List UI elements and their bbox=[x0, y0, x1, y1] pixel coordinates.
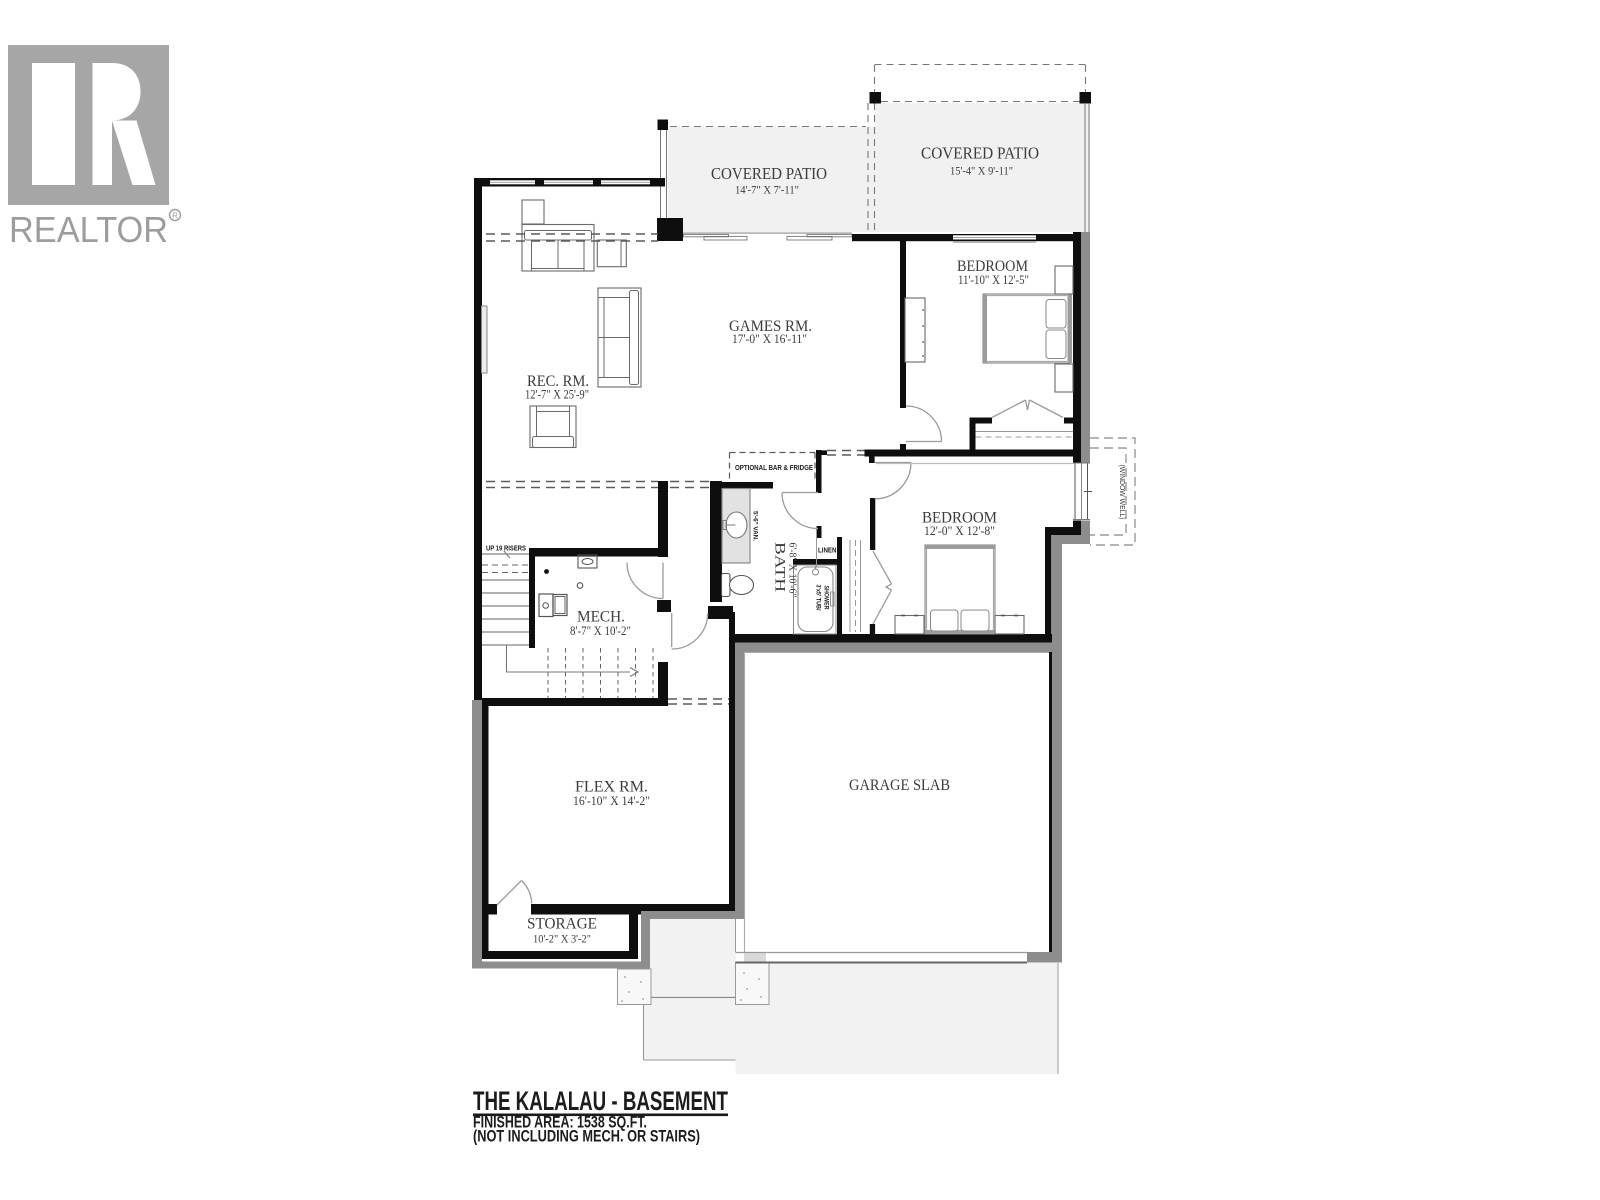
svg-text:(WINDOW WELL): (WINDOW WELL) bbox=[1118, 465, 1125, 520]
svg-text:R: R bbox=[172, 212, 178, 221]
svg-text:16'-10" X 14'-2": 16'-10" X 14'-2" bbox=[573, 794, 650, 808]
svg-text:14'-7" X 7'-11": 14'-7" X 7'-11" bbox=[735, 183, 799, 197]
svg-text:GARAGE SLAB: GARAGE SLAB bbox=[849, 777, 950, 794]
svg-text:MECH.: MECH. bbox=[577, 609, 625, 626]
svg-text:3'x5' TUB/: 3'x5' TUB/ bbox=[815, 585, 822, 611]
svg-text:(NOT INCLUDING MECH. OR STAIRS: (NOT INCLUDING MECH. OR STAIRS) bbox=[473, 1128, 700, 1146]
svg-text:FLEX RM.: FLEX RM. bbox=[575, 779, 648, 796]
svg-text:OPTIONAL BAR & FRIDGE: OPTIONAL BAR & FRIDGE bbox=[735, 463, 813, 472]
svg-text:THE KALALAU - BASEMENT: THE KALALAU - BASEMENT bbox=[473, 1086, 728, 1116]
svg-text:COVERED PATIO: COVERED PATIO bbox=[711, 164, 827, 183]
svg-text:LINEN: LINEN bbox=[818, 548, 837, 555]
svg-text:17'-0" X 16'-11": 17'-0" X 16'-11" bbox=[732, 332, 807, 346]
svg-text:8'-7" X 10'-2": 8'-7" X 10'-2" bbox=[570, 624, 631, 638]
svg-text:11'-10" X 12'-5": 11'-10" X 12'-5" bbox=[958, 273, 1029, 287]
svg-text:SHOWER: SHOWER bbox=[823, 586, 830, 610]
svg-text:6'-8" X 10'-6": 6'-8" X 10'-6" bbox=[787, 543, 799, 598]
svg-text:COVERED PATIO: COVERED PATIO bbox=[921, 144, 1039, 163]
svg-text:BATH: BATH bbox=[772, 542, 788, 592]
svg-text:15'-4" X 9'-11": 15'-4" X 9'-11" bbox=[950, 164, 1013, 178]
svg-text:5'-6" VAN.: 5'-6" VAN. bbox=[752, 511, 758, 541]
svg-text:10'-2" X 3'-2": 10'-2" X 3'-2" bbox=[533, 934, 591, 946]
svg-text:REALTOR: REALTOR bbox=[9, 209, 168, 250]
svg-text:STORAGE: STORAGE bbox=[527, 916, 597, 933]
svg-text:UP 19 RISERS: UP 19 RISERS bbox=[486, 544, 526, 553]
svg-text:12'-0" X 12'-8": 12'-0" X 12'-8" bbox=[924, 524, 995, 538]
svg-text:12'-7" X 25'-9": 12'-7" X 25'-9" bbox=[525, 388, 589, 402]
